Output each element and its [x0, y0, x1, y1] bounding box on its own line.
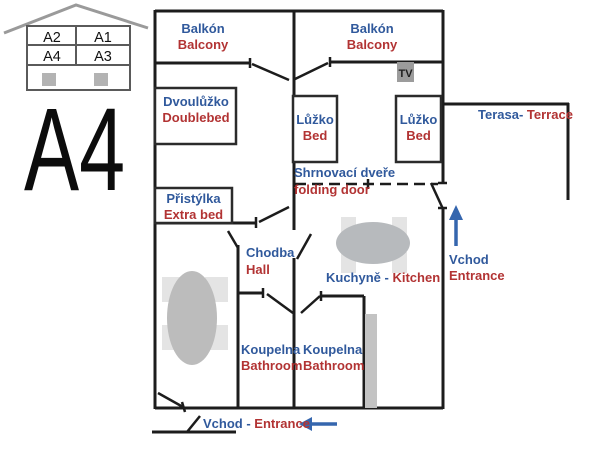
door-bathroom-right — [301, 296, 320, 313]
entrance-bottom-english: Entrance — [254, 416, 310, 431]
bed-left-english: Bed — [293, 128, 337, 144]
room-label-balcony-left: Balkón Balcony — [160, 21, 246, 53]
door-balcony-left — [252, 64, 289, 80]
bathroom-left-english: Bathroom — [241, 358, 302, 374]
doublebed-czech: Dvoulůžko — [155, 94, 237, 110]
room-label-bed-left: Lůžko Bed — [293, 112, 337, 144]
kitchen-english: Kitchen — [392, 270, 440, 285]
floorplan-drawing: A2 A1 A4 A3 — [0, 0, 600, 450]
floorplan-page: A2 A1 A4 A3 — [0, 0, 600, 450]
folding-door-english: folding door — [294, 181, 395, 198]
tv-label: TV — [398, 68, 413, 80]
jamb-tick — [182, 402, 185, 412]
entrance-right-arrow-head — [449, 205, 463, 220]
hall-czech: Chodba — [246, 244, 294, 261]
kitchen-table-set — [336, 217, 410, 273]
bed-right-english: Bed — [396, 128, 441, 144]
living-table — [167, 271, 217, 365]
door-entrance-right — [431, 183, 443, 209]
unit-cell-a3: A3 — [94, 49, 112, 65]
kitchen-table — [336, 222, 410, 264]
counter — [365, 314, 377, 408]
entrance-right-english: Entrance — [449, 268, 505, 284]
entrance-slash-mark — [187, 416, 200, 432]
terrace-english: Terrace — [527, 107, 573, 122]
room-label-entrance-bottom: Vchod - Entrance — [203, 416, 310, 432]
door-livingroom — [259, 207, 289, 222]
extra-bed-english: Extra bed — [155, 207, 232, 223]
door-balcony-right — [293, 63, 328, 80]
bathroom-right-english: Bathroom — [303, 358, 364, 374]
room-label-hall: Chodba Hall — [246, 244, 294, 278]
entrance-bottom-czech: Vchod - — [203, 416, 251, 431]
building-icon: A2 A1 A4 A3 — [4, 5, 148, 90]
door-bathroom-left — [267, 294, 293, 313]
door-hall-left — [228, 231, 238, 248]
extra-bed-czech: Přistýlka — [155, 191, 232, 207]
room-label-balcony-right: Balkón Balcony — [329, 21, 415, 53]
terrace-czech: Terasa- — [478, 107, 523, 122]
room-label-bathroom-left: Koupelna Bathroom — [241, 342, 302, 374]
bathroom-right-czech: Koupelna — [303, 342, 364, 358]
room-label-folding-door: Shrnovací dveře folding door — [294, 164, 395, 198]
door-kitchen — [297, 234, 311, 259]
bed-left-czech: Lůžko — [293, 112, 337, 128]
unit-cell-a1: A1 — [94, 30, 112, 46]
door-entrance-bottom — [158, 393, 183, 407]
unit-code-heading: A4 — [24, 96, 125, 205]
bathroom-left-czech: Koupelna — [241, 342, 302, 358]
room-label-bathroom-right: Koupelna Bathroom — [303, 342, 364, 374]
room-label-bed-right: Lůžko Bed — [396, 112, 441, 144]
balcony-right-czech: Balkón — [329, 21, 415, 37]
room-label-doublebed: Dvoulůžko Doublebed — [155, 94, 237, 126]
kitchen-czech: Kuchyně - — [326, 270, 389, 285]
room-label-extra-bed: Přistýlka Extra bed — [155, 191, 232, 223]
doublebed-english: Doublebed — [155, 110, 237, 126]
room-label-kitchen: Kuchyně - Kitchen — [326, 270, 440, 286]
hall-english: Hall — [246, 261, 294, 278]
living-table-set — [162, 271, 228, 365]
entrance-right-czech: Vchod — [449, 252, 505, 268]
folding-door-czech: Shrnovací dveře — [294, 164, 395, 181]
unit-cell-a4: A4 — [43, 49, 61, 65]
bed-right-czech: Lůžko — [396, 112, 441, 128]
balcony-right-english: Balcony — [329, 37, 415, 53]
balcony-left-czech: Balkón — [160, 21, 246, 37]
balcony-left-english: Balcony — [160, 37, 246, 53]
room-label-entrance-right: Vchod Entrance — [449, 252, 505, 284]
room-label-terrace: Terasa- Terrace — [478, 107, 573, 123]
unit-cell-a2: A2 — [43, 30, 61, 46]
